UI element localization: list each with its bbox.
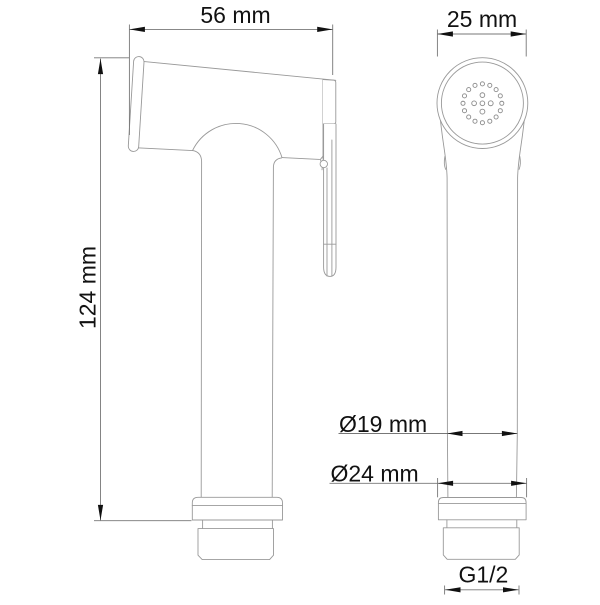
svg-text:G1/2: G1/2 bbox=[458, 562, 508, 588]
svg-text:124 mm: 124 mm bbox=[75, 246, 101, 329]
svg-text:Ø19 mm: Ø19 mm bbox=[339, 411, 427, 437]
svg-text:Ø24 mm: Ø24 mm bbox=[331, 460, 419, 486]
svg-text:56 mm: 56 mm bbox=[200, 2, 270, 28]
svg-text:25 mm: 25 mm bbox=[447, 6, 517, 32]
